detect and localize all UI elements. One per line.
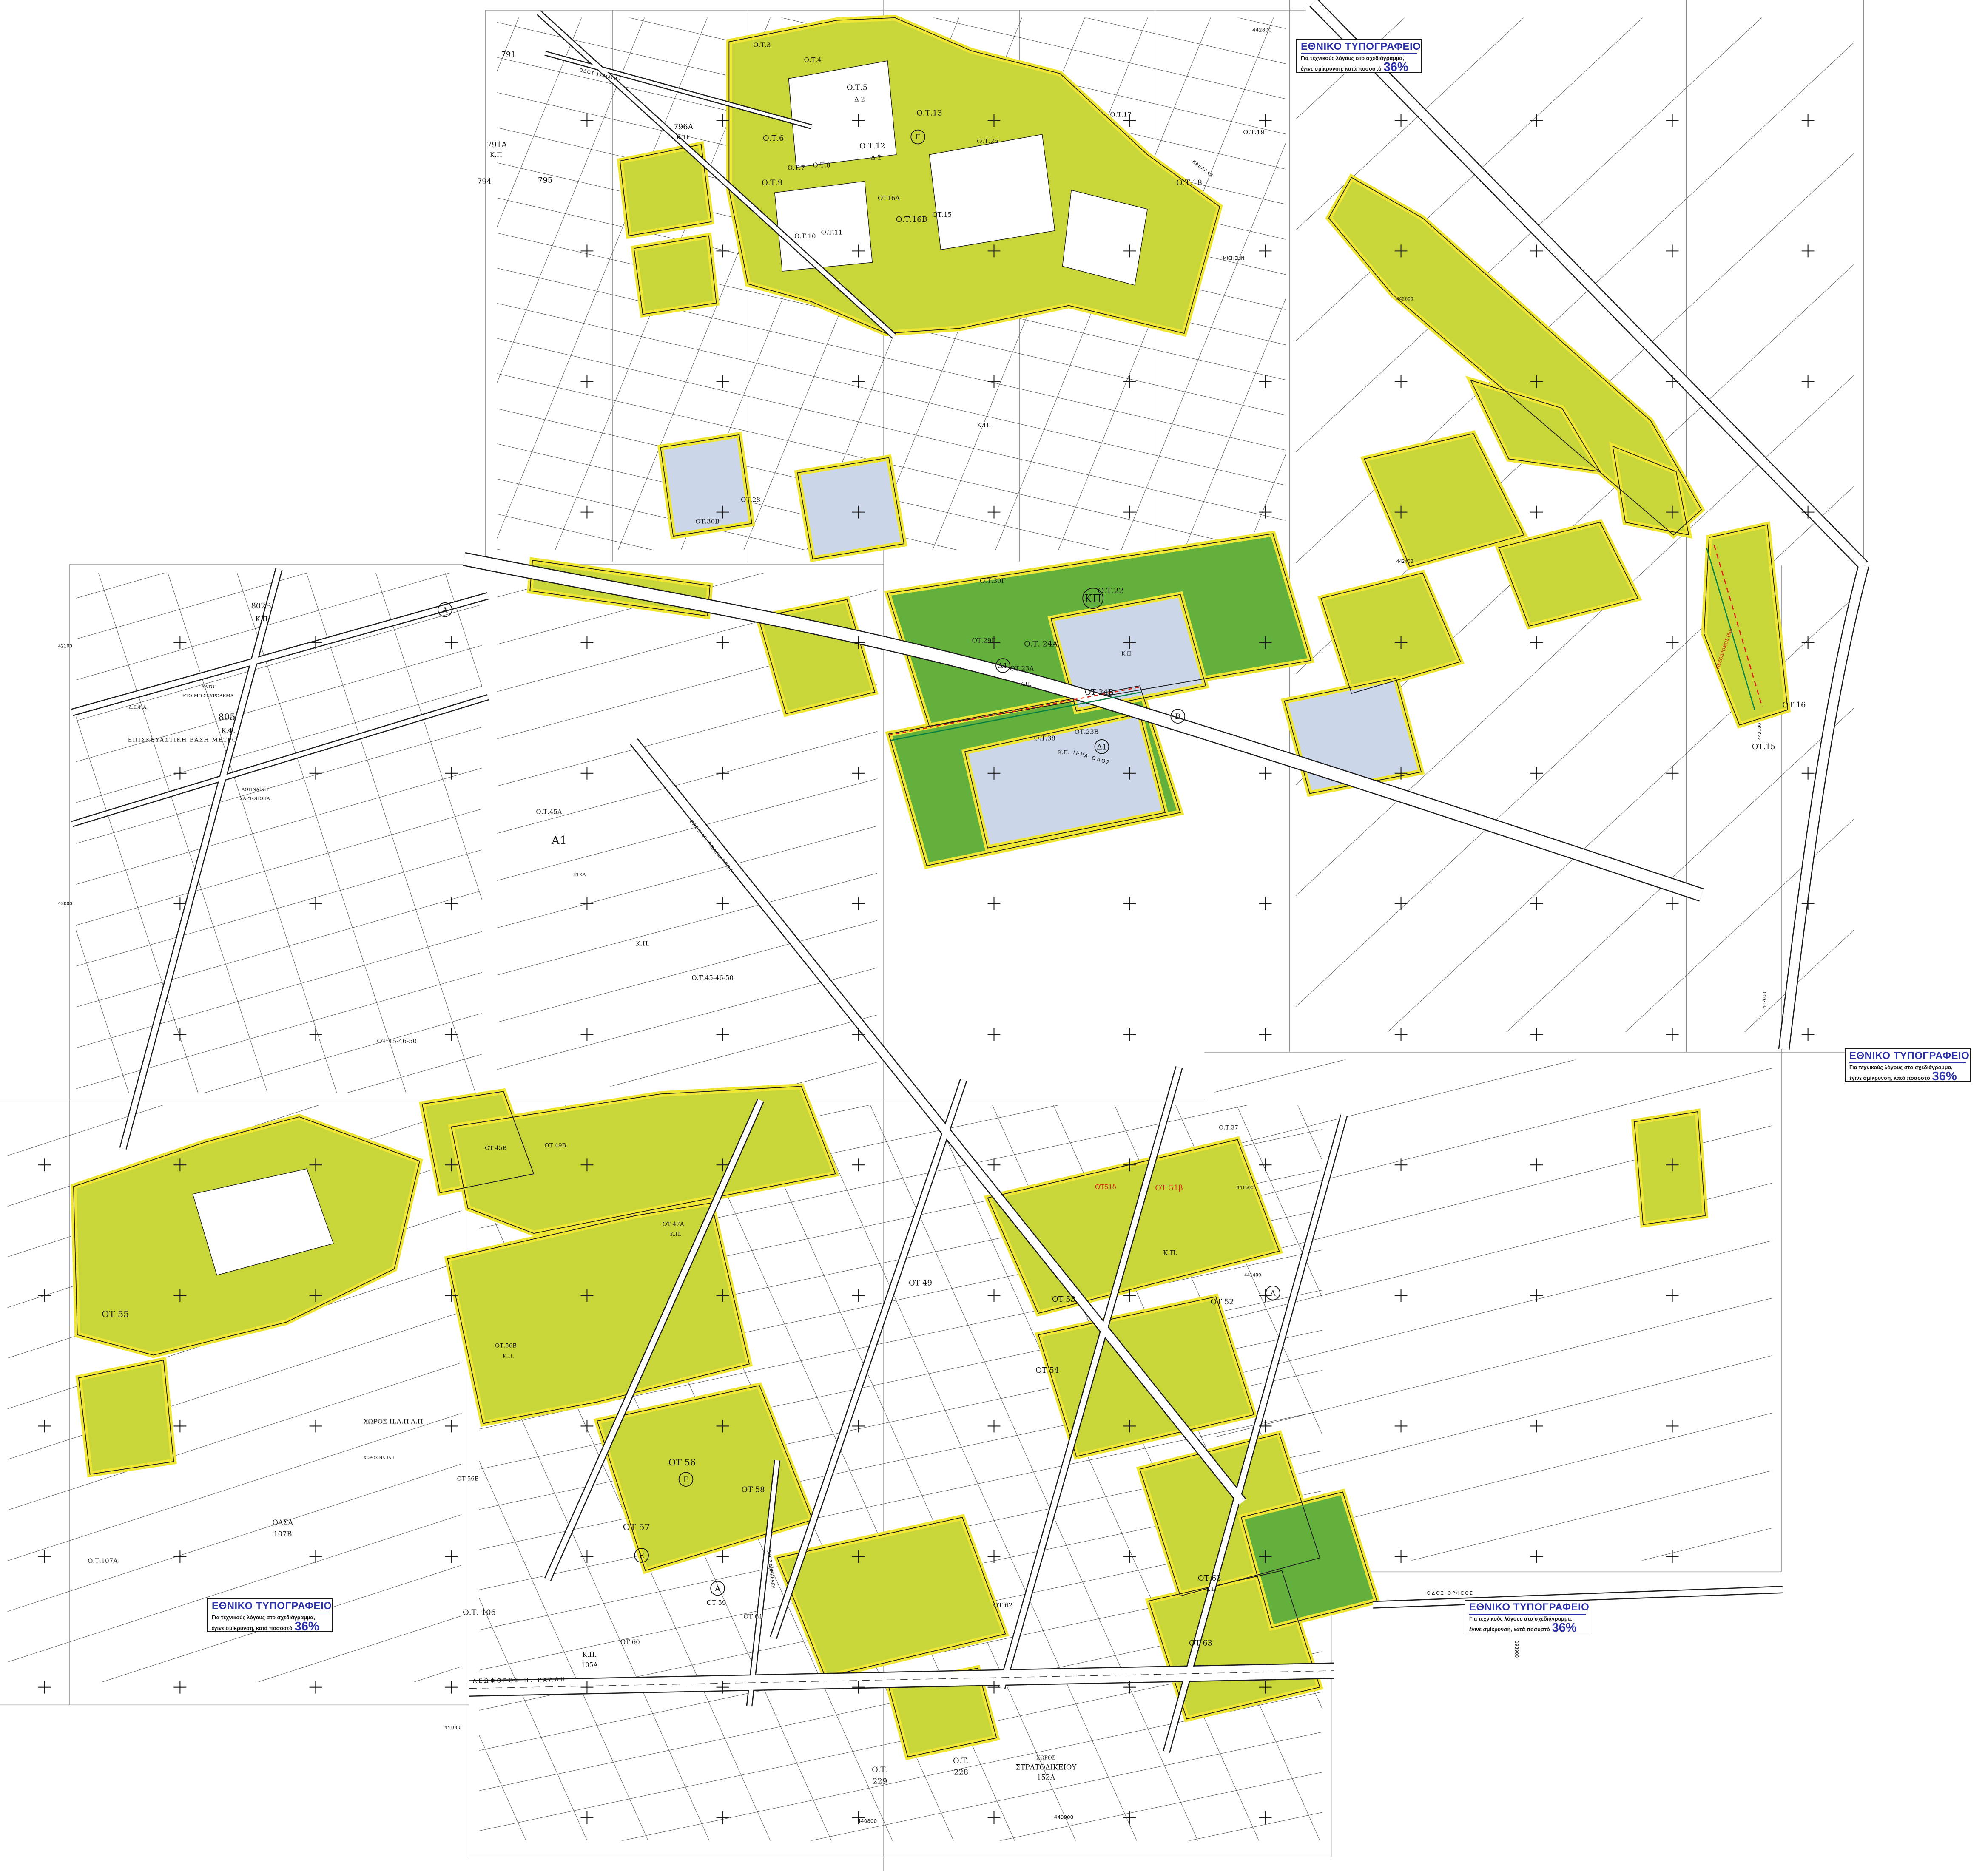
registration-cross <box>717 244 729 257</box>
registration-cross <box>1666 1550 1679 1563</box>
map-label: Κ.Π. <box>636 940 650 947</box>
registration-cross <box>38 1681 51 1694</box>
registration-cross <box>1259 1028 1272 1041</box>
map-label: Ο.Τ.19 <box>1243 128 1265 136</box>
map-label: Ο.Τ.16Β <box>896 215 927 224</box>
map-label: Ο.Τ.107Α <box>88 1557 118 1564</box>
zone-hole <box>788 61 896 167</box>
registration-cross <box>988 1158 1001 1171</box>
map-label: ΟΤ 54 <box>1035 1366 1059 1375</box>
map-label: ΧΑΡΤΟΠΟΙΪΑ <box>240 795 270 801</box>
registration-cross <box>38 1289 51 1302</box>
registration-cross <box>852 1158 865 1171</box>
registration-cross <box>445 1028 458 1041</box>
stamp-title: ΕΘΝΙΚΟ ΤΥΠΟΓΡΑΦΕΙΟ <box>1849 1051 1966 1063</box>
registration-cross <box>309 1681 322 1694</box>
registration-cross <box>717 636 729 649</box>
map-label: Ο.Τ.9 <box>762 178 782 187</box>
reduction-stamp-top-right: ΕΘΝΙΚΟ ΤΥΠΟΓΡΑΦΕΙΟ Για τεχνικούς λόγους … <box>1296 39 1422 73</box>
registration-cross <box>581 767 594 780</box>
map-label: Ο.Τ. <box>872 1765 888 1774</box>
map-label: ΧΩΡΟΣ ΗΛΠΑΠ <box>364 1456 395 1460</box>
registration-cross <box>988 1028 1001 1041</box>
map-label: Ο.Τ.6 <box>763 134 784 143</box>
road-surface <box>72 697 488 824</box>
registration-cross <box>1802 1028 1815 1041</box>
map-label: Ο.Τ.8 <box>813 162 830 169</box>
registration-cross <box>717 1028 729 1041</box>
map-label: ΟΤ.30Β <box>695 517 720 525</box>
map-canvas: Δ1Δ1ΕΕΑΑΓΒΑΚΠΟ.Τ.3Ο.Τ.4Ο.Τ.5Δ 2Ο.Τ.6Ο.Τ.… <box>0 0 1988 1871</box>
registration-cross <box>1259 1158 1272 1171</box>
registration-cross <box>309 1420 322 1433</box>
registration-cross <box>581 1550 594 1563</box>
zone-lavender <box>797 457 904 559</box>
stamp-percent: 36% <box>1932 1071 1957 1082</box>
registration-cross <box>988 1289 1001 1302</box>
registration-cross <box>1530 506 1543 519</box>
registration-cross <box>1802 636 1815 649</box>
map-label: Ο.Τ.30Γ <box>980 577 1006 585</box>
svg-text:Δ1: Δ1 <box>998 662 1008 670</box>
map-label: ΟΤ 24Β <box>1085 688 1114 697</box>
map-label: Κ.Π. <box>1163 1249 1177 1257</box>
zone-hole <box>775 181 873 271</box>
map-label: 791Α <box>487 140 507 149</box>
circled-mark: Α <box>711 1581 725 1596</box>
registration-cross <box>1395 1420 1408 1433</box>
map-label: ΟΤ 45-46-50 <box>377 1037 417 1045</box>
road-surface <box>123 569 279 1149</box>
map-label: Ο.Τ.18 <box>1176 178 1202 187</box>
map-label: 229 <box>873 1777 887 1786</box>
reduction-stamp-bottom-middle: ΕΘΝΙΚΟ ΤΥΠΟΓΡΑΦΕΙΟ Για τεχνικούς λόγους … <box>1465 1600 1590 1633</box>
zone-hole <box>929 134 1055 250</box>
map-label: Ο.Τ.13 <box>916 108 942 117</box>
registration-cross <box>852 1289 865 1302</box>
registration-cross <box>1123 1550 1136 1563</box>
registration-cross <box>717 767 729 780</box>
stamp-percent: 36% <box>1552 1623 1577 1633</box>
map-label: Κ.Π. <box>1020 681 1032 687</box>
map-label: ΟΤ 53 <box>1052 1295 1075 1304</box>
map-label: Ο.Τ.4 <box>804 56 822 64</box>
map-label: ΟΑΣΑ <box>273 1519 293 1527</box>
registration-cross <box>1395 897 1408 910</box>
map-label: ΑΘΗΝΑΪΚΗ <box>241 786 268 792</box>
registration-cross <box>1395 1158 1408 1171</box>
zone-chartreuse <box>1613 446 1689 535</box>
map-label: Ο.Τ. 24Α <box>1024 640 1058 649</box>
registration-cross <box>717 1550 729 1563</box>
map-label: 794 <box>477 177 492 186</box>
registration-cross <box>988 1420 1001 1433</box>
map-label: ΟΤ.15 <box>1752 742 1775 751</box>
map-label: 42000 <box>58 901 72 906</box>
map-label: ΟΤ.16 <box>1782 701 1806 710</box>
registration-cross <box>581 114 594 127</box>
registration-cross <box>309 1550 322 1563</box>
registration-cross <box>852 1420 865 1433</box>
registration-cross <box>1259 114 1272 127</box>
map-label: ΟΤ.28 <box>741 496 760 504</box>
registration-cross <box>581 1420 594 1433</box>
registration-cross <box>717 897 729 910</box>
registration-cross <box>1802 767 1815 780</box>
registration-cross <box>1123 375 1136 388</box>
map-label: 442100 <box>1757 723 1762 740</box>
registration-cross <box>445 1420 458 1433</box>
registration-cross <box>581 244 594 257</box>
registration-cross <box>581 506 594 519</box>
map-label: ΟΤ.23Β <box>1075 728 1099 735</box>
registration-cross <box>1802 244 1815 257</box>
registration-cross <box>1395 114 1408 127</box>
map-label: Κ.Π. <box>490 151 504 159</box>
registration-cross <box>852 375 865 388</box>
registration-cross <box>173 1681 186 1694</box>
circled-mark: Α <box>1266 1286 1280 1300</box>
registration-cross <box>1530 1420 1543 1433</box>
map-label: Ο.Τ.45-46-50 <box>691 974 734 982</box>
map-label: ΟΤ 56 <box>668 1457 696 1468</box>
registration-cross <box>1123 506 1136 519</box>
registration-cross <box>309 1028 322 1041</box>
registration-cross <box>852 897 865 910</box>
registration-cross <box>1666 1028 1679 1041</box>
svg-text:Γ: Γ <box>916 133 921 142</box>
map-label: ΟΔΟΣ ΑΓ. ΠΟΛΥΚΑΡΠΟΥ <box>688 819 734 873</box>
map-label: Κ.Π. <box>255 615 270 623</box>
map-label: 198900 <box>1514 1641 1519 1658</box>
map-label: Ο.Τ.10 <box>794 233 816 240</box>
stamp-title: ΕΘΝΙΚΟ ΤΥΠΟΓΡΑΦΕΙΟ <box>1469 1602 1586 1615</box>
map-label: Κ.Π. <box>503 1353 514 1359</box>
map-label: ΧΩΡΟΣ Η.Λ.Π.Α.Π. <box>364 1417 425 1425</box>
registration-cross <box>1259 897 1272 910</box>
registration-cross <box>1530 1550 1543 1563</box>
map-label: ΟΤ51δ <box>1095 1183 1116 1191</box>
zone-chartreuse <box>634 236 717 315</box>
map-label: Κ.Π. <box>1121 651 1133 657</box>
map-label: 442400 <box>1396 559 1413 564</box>
registration-cross <box>1395 1550 1408 1563</box>
registration-cross <box>38 1158 51 1171</box>
registration-cross <box>1666 1289 1679 1302</box>
registration-cross <box>1802 375 1815 388</box>
registration-cross <box>1259 1289 1272 1302</box>
zone-chartreuse <box>1321 573 1461 693</box>
map-label: Κ.Π. <box>1058 750 1069 755</box>
registration-cross <box>1802 114 1815 127</box>
map-label: MICHELIN <box>1223 256 1244 261</box>
map-label: 441000 <box>444 1725 461 1730</box>
map-label: 442000 <box>1762 992 1767 1009</box>
registration-cross <box>1530 636 1543 649</box>
map-label: 440000 <box>1054 1814 1073 1820</box>
map-label: ΧΩΡΟΣ <box>1036 1755 1055 1761</box>
registration-cross <box>445 897 458 910</box>
map-label: 795 <box>538 176 552 185</box>
registration-cross <box>1123 897 1136 910</box>
map-label: Δ.Ε.Φ.Α. <box>129 705 148 710</box>
scanned-city-plan-page: { "document": { "type": "Scanned Greek u… <box>0 0 1988 1871</box>
map-label: ΕΤΚΑ <box>573 872 586 877</box>
svg-text:Ε: Ε <box>639 1552 644 1560</box>
registration-cross <box>1395 375 1408 388</box>
map-label: 153Α <box>1037 1773 1055 1781</box>
registration-cross <box>1530 1289 1543 1302</box>
stamp-percent: 36% <box>1384 62 1408 73</box>
stamp-line2: έγινε σμίκρυνση, κατά ποσοστό <box>1469 1627 1550 1633</box>
registration-cross <box>1530 1158 1543 1171</box>
map-label: 42100 <box>58 644 72 649</box>
map-label: Κ.Π. <box>676 133 691 141</box>
registration-cross <box>1395 1028 1408 1041</box>
map-label: ΟΤ.23Α <box>1010 664 1034 672</box>
map-label: ΟΤ 63 <box>1198 1574 1221 1583</box>
map-label: ΟΤ 56Β <box>457 1476 479 1482</box>
zone-chartreuse <box>1634 1112 1705 1224</box>
map-label: ΟΤ.56Β <box>495 1343 517 1349</box>
map-label: ΟΤ 59 <box>707 1599 726 1607</box>
map-label: ΟΤ 45Β <box>485 1145 506 1151</box>
map-label: ΕΤΟΙΜΟ ΣΚΥΡΟΔΕΜΑ <box>182 693 234 698</box>
registration-cross <box>309 767 322 780</box>
map-label: ΟΤ 62 <box>993 1601 1012 1609</box>
registration-cross <box>173 1550 186 1563</box>
svg-text:Α: Α <box>1270 1289 1276 1298</box>
registration-cross <box>445 1550 458 1563</box>
registration-cross <box>173 1420 186 1433</box>
map-label: 442800 <box>1252 27 1271 33</box>
stamp-line2: έγινε σμίκρυνση, κατά ποσοστό <box>1849 1075 1930 1082</box>
map-label: Κ.Π. <box>583 1651 597 1658</box>
registration-cross <box>581 897 594 910</box>
map-label: ΟΤ 52 <box>1211 1297 1234 1306</box>
map-label: Ο.Τ.37 <box>1219 1125 1238 1131</box>
map-label: ΟΤ.15 <box>932 211 952 219</box>
svg-text:Α: Α <box>442 606 448 614</box>
registration-cross <box>38 1420 51 1433</box>
zone-chartreuse <box>79 1360 174 1474</box>
map-label: Α1 <box>551 834 567 847</box>
map-label: Δ 2 <box>871 154 882 162</box>
stamp-line2: έγινε σμίκρυνση, κατά ποσοστό <box>212 1625 293 1632</box>
map-label: ΟΤ 57 <box>623 1522 650 1532</box>
map-label: Ο.Τ.11 <box>821 229 843 236</box>
map-label: "ΛΑΤΟ" <box>199 684 216 690</box>
map-label: 441500 <box>1237 1185 1254 1190</box>
registration-cross <box>1530 897 1543 910</box>
registration-cross <box>581 1811 594 1824</box>
registration-cross <box>1666 767 1679 780</box>
map-label: ΚΑΒΑΛΑΣ <box>1191 159 1214 179</box>
registration-cross <box>1666 1420 1679 1433</box>
svg-text:Α: Α <box>714 1584 720 1593</box>
map-label: Δ 2 <box>854 96 865 103</box>
map-label: Κ.Π. <box>1206 1586 1218 1592</box>
reduction-stamp-bottom-left: ΕΘΝΙΚΟ ΤΥΠΟΓΡΑΦΕΙΟ Για τεχνικούς λόγους … <box>207 1598 333 1632</box>
map-label: ΟΤ 61 <box>743 1613 763 1621</box>
map-label: ΟΔΟΣ ΟΡΦΕΟΣ <box>1427 1591 1474 1596</box>
registration-cross <box>1259 1811 1272 1824</box>
map-label: 802Β <box>251 602 271 610</box>
map-label: ΟΤ 49Β <box>544 1142 566 1149</box>
registration-cross <box>1259 375 1272 388</box>
map-label: ΟΤ.29Γ <box>972 637 996 644</box>
registration-cross <box>1123 1028 1136 1041</box>
map-label: ΟΤ 63 <box>1189 1638 1212 1647</box>
registration-cross <box>581 636 594 649</box>
road-surface <box>72 596 488 712</box>
registration-cross <box>988 1811 1001 1824</box>
map-label: 442600 <box>1396 297 1413 302</box>
map-label: 440800 <box>858 1818 877 1824</box>
registration-cross <box>717 375 729 388</box>
map-label: 796Α <box>674 122 694 131</box>
map-label: ΟΤ 47Α <box>663 1221 684 1227</box>
registration-cross <box>581 375 594 388</box>
map-label: Κ.Φ. <box>221 727 235 734</box>
registration-cross <box>988 897 1001 910</box>
registration-cross <box>1666 897 1679 910</box>
registration-cross <box>445 767 458 780</box>
map-label: ΟΤ 51β <box>1155 1184 1183 1192</box>
zone-chartreuse <box>597 1386 813 1570</box>
map-label: ΟΤ 60 <box>620 1638 640 1646</box>
registration-cross <box>1530 244 1543 257</box>
map-label: ΟΤ16Α <box>878 194 900 202</box>
map-label: 805 <box>219 712 236 722</box>
registration-cross <box>988 375 1001 388</box>
registration-cross <box>717 1811 729 1824</box>
map-label: Ο.Τ.38 <box>1034 734 1055 742</box>
registration-cross <box>445 1681 458 1694</box>
reduction-stamp-right-middle: ΕΘΝΙΚΟ ΤΥΠΟΓΡΑΦΕΙΟ Για τεχνικούς λόγους … <box>1845 1048 1971 1082</box>
registration-cross <box>1666 636 1679 649</box>
map-label: Ο.Τ.5 <box>847 83 867 92</box>
registration-cross <box>988 506 1001 519</box>
map-label: ΟΤ 55 <box>102 1309 129 1319</box>
registration-cross <box>445 636 458 649</box>
registration-cross <box>1666 114 1679 127</box>
registration-cross <box>1259 767 1272 780</box>
registration-cross <box>173 767 186 780</box>
map-label: ΣΤΡΑΤΟΔΙΚΕΙΟΥ <box>1015 1763 1076 1771</box>
registration-cross <box>309 897 322 910</box>
map-label: Ο.Τ. 106 <box>463 1608 496 1617</box>
map-label: Ο.Τ.22 <box>1098 586 1123 595</box>
stamp-title: ΕΘΝΙΚΟ ΤΥΠΟΓΡΑΦΕΙΟ <box>1301 42 1417 54</box>
map-label: ΕΠΙΣΚΕΥΑΣΤΙΚΗ ΒΑΣΗ ΜΕΤΡΟ <box>128 737 237 743</box>
map-label: Κ.Π. <box>977 421 991 429</box>
svg-text:Ε: Ε <box>683 1476 689 1484</box>
map-label: Ο.Τ.25 <box>977 137 998 145</box>
registration-cross <box>173 1028 186 1041</box>
svg-text:Β: Β <box>1175 713 1180 721</box>
registration-cross <box>1395 1289 1408 1302</box>
registration-cross <box>1123 1811 1136 1824</box>
registration-cross <box>581 1028 594 1041</box>
map-label: Ο.Τ.3 <box>753 41 771 48</box>
registration-cross <box>852 767 865 780</box>
registration-cross <box>1666 244 1679 257</box>
registration-cross <box>1259 244 1272 257</box>
map-label: ΟΤ 58 <box>742 1485 765 1494</box>
map-label: 228 <box>954 1768 968 1777</box>
map-label: Ο.Τ. <box>953 1757 969 1766</box>
registration-cross <box>1530 114 1543 127</box>
registration-cross <box>1530 1028 1543 1041</box>
map-label: Ο.Τ.7 <box>788 164 805 172</box>
stamp-line2: έγινε σμίκρυνση, κατά ποσοστό <box>1301 66 1382 73</box>
registration-cross <box>38 1550 51 1563</box>
map-label: Ο.Τ.45Α <box>536 808 562 815</box>
map-label: 441400 <box>1244 1273 1261 1278</box>
svg-text:Δ1: Δ1 <box>1097 743 1106 751</box>
stamp-percent: 36% <box>295 1621 319 1632</box>
map-label: Ο.Τ.12 <box>859 142 885 150</box>
map-label: 105Α <box>581 1661 598 1669</box>
registration-cross <box>173 636 186 649</box>
stamp-title: ΕΘΝΙΚΟ ΤΥΠΟΓΡΑΦΕΙΟ <box>212 1601 328 1613</box>
map-label: 107Β <box>273 1530 292 1538</box>
map-label: Ο.Τ.17 <box>1110 111 1132 118</box>
map-label: 791 <box>501 50 516 59</box>
map-label: ΟΤ 49 <box>909 1278 932 1287</box>
registration-cross <box>988 1550 1001 1563</box>
map-label: Κ.Π. <box>670 1231 682 1237</box>
